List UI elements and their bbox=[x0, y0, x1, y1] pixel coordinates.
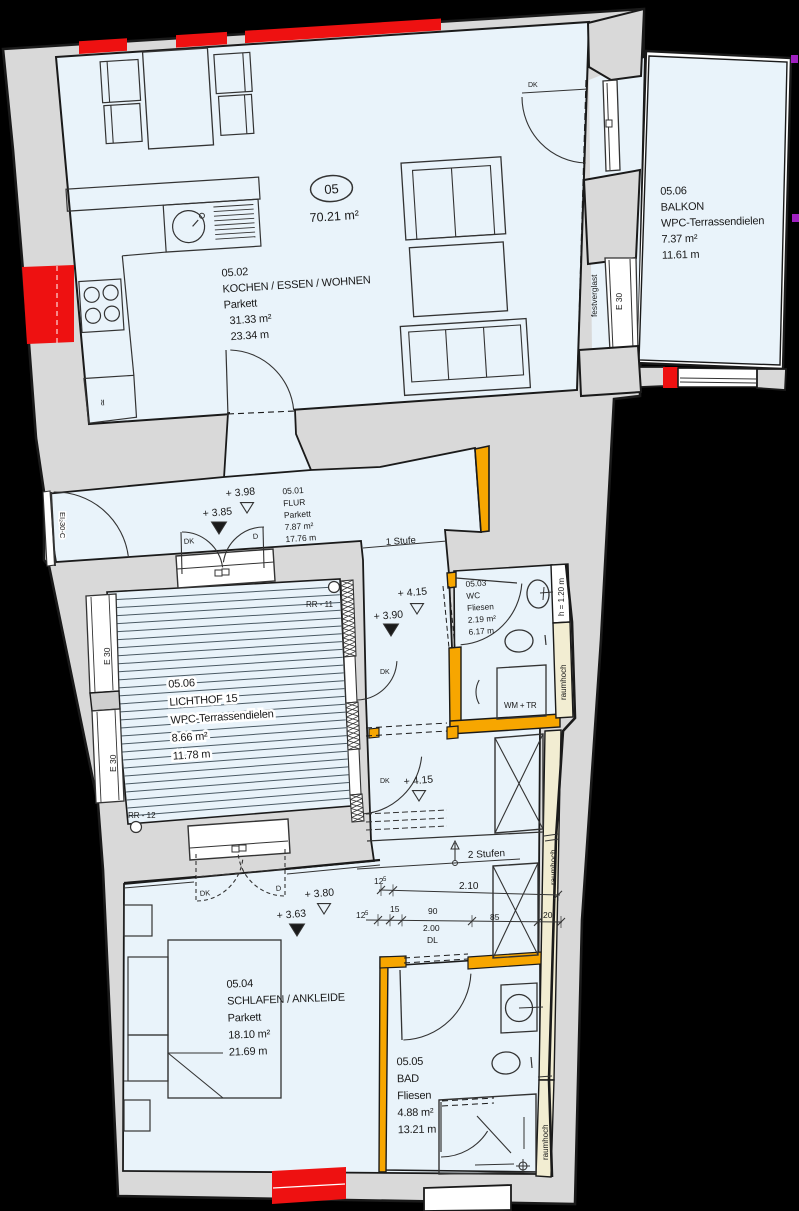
svg-text:15: 15 bbox=[390, 904, 400, 914]
svg-text:DK: DK bbox=[380, 778, 390, 785]
svg-text:E 30: E 30 bbox=[108, 754, 118, 772]
svg-text:BAD: BAD bbox=[397, 1073, 419, 1085]
svg-text:05.05: 05.05 bbox=[396, 1056, 423, 1068]
svg-text:Parkett: Parkett bbox=[284, 508, 312, 520]
svg-text:E 30: E 30 bbox=[102, 647, 112, 665]
svg-text:2 Stufen: 2 Stufen bbox=[468, 848, 506, 861]
svg-text:2.00: 2.00 bbox=[423, 923, 440, 933]
svg-text:05.04: 05.04 bbox=[226, 978, 253, 991]
svg-text:≃: ≃ bbox=[97, 399, 107, 407]
svg-text:Fliesen: Fliesen bbox=[467, 601, 495, 613]
svg-text:Fliesen: Fliesen bbox=[397, 1090, 431, 1103]
svg-text:DL: DL bbox=[427, 935, 438, 945]
svg-text:1 Stufe: 1 Stufe bbox=[385, 535, 416, 548]
svg-text:FLUR: FLUR bbox=[283, 497, 306, 508]
svg-text:2.10: 2.10 bbox=[459, 881, 479, 892]
svg-text:RR - 12: RR - 12 bbox=[128, 811, 156, 820]
svg-text:Parkett: Parkett bbox=[227, 1012, 261, 1025]
svg-text:85: 85 bbox=[490, 912, 500, 922]
svg-text:90: 90 bbox=[428, 906, 438, 916]
svg-text:E 30: E 30 bbox=[614, 293, 624, 310]
svg-text:Parkett: Parkett bbox=[223, 297, 257, 311]
svg-text:6.17 m: 6.17 m bbox=[468, 625, 494, 637]
svg-text:11.61 m: 11.61 m bbox=[662, 249, 700, 262]
svg-text:raumhoch: raumhoch bbox=[541, 1124, 550, 1160]
svg-text:festverglast: festverglast bbox=[589, 274, 599, 317]
svg-text:05.06: 05.06 bbox=[168, 677, 195, 691]
svg-text:DK: DK bbox=[380, 669, 390, 676]
svg-text:BALKON: BALKON bbox=[661, 201, 705, 214]
svg-text:7.37 m²: 7.37 m² bbox=[661, 233, 698, 246]
svg-text:EI₂30-C: EI₂30-C bbox=[58, 512, 67, 539]
svg-text:05: 05 bbox=[324, 181, 339, 197]
svg-text:raumhoch: raumhoch bbox=[559, 664, 568, 700]
svg-text:2.19 m²: 2.19 m² bbox=[468, 613, 497, 625]
svg-text:21.69 m: 21.69 m bbox=[229, 1045, 268, 1058]
svg-text:20: 20 bbox=[543, 910, 553, 920]
svg-text:05.01: 05.01 bbox=[282, 485, 304, 496]
svg-text:05.06: 05.06 bbox=[660, 185, 687, 198]
svg-text:05.03: 05.03 bbox=[465, 578, 487, 589]
svg-text:17.76 m: 17.76 m bbox=[285, 532, 316, 544]
svg-text:WC: WC bbox=[466, 590, 480, 601]
svg-text:11.78 m: 11.78 m bbox=[172, 748, 210, 762]
svg-text:18.10 m²: 18.10 m² bbox=[228, 1028, 271, 1041]
svg-text:05.02: 05.02 bbox=[221, 266, 248, 280]
svg-text:4.88 m²: 4.88 m² bbox=[397, 1107, 434, 1120]
svg-text:7.87 m²: 7.87 m² bbox=[284, 520, 314, 532]
svg-text:RR - 11: RR - 11 bbox=[306, 600, 334, 609]
svg-text:13.21 m: 13.21 m bbox=[398, 1124, 437, 1137]
svg-text:DK: DK bbox=[528, 82, 538, 89]
svg-text:WM + TR: WM + TR bbox=[504, 701, 537, 710]
svg-text:8.66 m²: 8.66 m² bbox=[171, 730, 208, 744]
svg-text:DK: DK bbox=[184, 536, 195, 546]
svg-text:23.34 m: 23.34 m bbox=[230, 329, 269, 343]
svg-text:h = 1.20 m: h = 1.20 m bbox=[557, 578, 566, 616]
svg-text:DK: DK bbox=[200, 888, 211, 898]
